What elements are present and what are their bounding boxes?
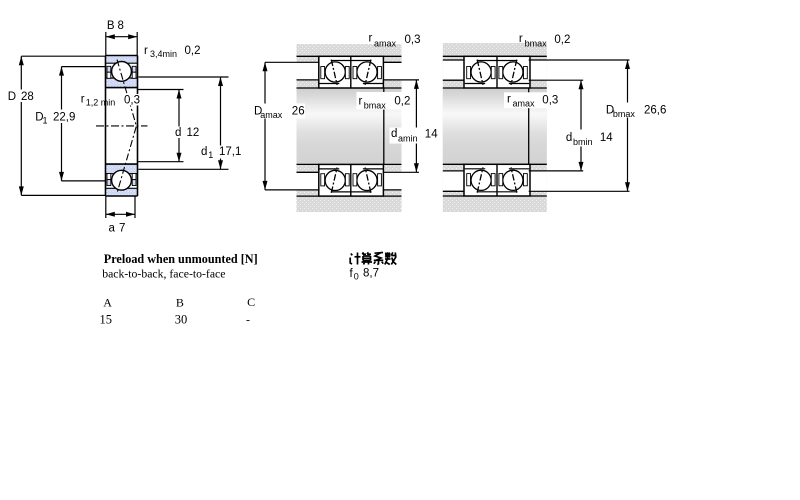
svg-text:bmin: bmin: [573, 137, 593, 147]
svg-text:r: r: [519, 33, 523, 45]
svg-text:a: a: [109, 222, 116, 234]
svg-text:back-to-back, face-to-face: back-to-back, face-to-face: [102, 267, 225, 280]
svg-text:26: 26: [292, 106, 305, 118]
svg-text:15: 15: [100, 313, 113, 327]
svg-text:amax: amax: [513, 99, 536, 109]
svg-text:d: d: [391, 128, 397, 140]
svg-text:r: r: [359, 96, 363, 108]
svg-text:amax: amax: [374, 38, 397, 48]
svg-text:0,2: 0,2: [394, 95, 410, 107]
svg-text:d: d: [566, 132, 572, 144]
svg-text:A: A: [103, 296, 112, 310]
svg-text:0,3: 0,3: [124, 95, 140, 107]
svg-text:d: d: [201, 146, 207, 158]
svg-text:0,3: 0,3: [405, 34, 421, 46]
svg-text:amax: amax: [260, 110, 283, 120]
svg-text:B: B: [107, 20, 115, 32]
svg-text:d: d: [175, 127, 181, 139]
svg-text:0,2: 0,2: [554, 34, 570, 46]
svg-text:C: C: [247, 295, 255, 309]
svg-text:0,3: 0,3: [542, 95, 558, 107]
svg-text:1,2 min: 1,2 min: [86, 98, 116, 108]
svg-text:3,4min: 3,4min: [150, 49, 177, 59]
svg-text:r: r: [369, 33, 373, 45]
svg-text:Preload when unmounted [N]: Preload when unmounted [N]: [104, 252, 258, 266]
svg-text:0,2: 0,2: [185, 45, 201, 57]
svg-text:bmax: bmax: [613, 109, 636, 119]
svg-text:8,7: 8,7: [363, 268, 379, 280]
svg-text:0: 0: [354, 272, 359, 282]
svg-text:14: 14: [600, 132, 613, 144]
svg-text:1: 1: [208, 150, 213, 160]
svg-text:r: r: [81, 94, 85, 106]
svg-text:B: B: [176, 296, 184, 310]
svg-text:amin: amin: [398, 133, 418, 143]
svg-text:D: D: [8, 91, 16, 103]
svg-text:r: r: [144, 45, 148, 57]
svg-text:bmax: bmax: [525, 39, 548, 49]
svg-text:28: 28: [21, 91, 34, 103]
svg-text:30: 30: [175, 313, 188, 327]
svg-text:14: 14: [425, 128, 438, 140]
svg-text:17,1: 17,1: [219, 146, 241, 158]
svg-text:22,9: 22,9: [53, 112, 75, 124]
svg-text:-: -: [246, 313, 250, 327]
svg-text:bmax: bmax: [364, 101, 387, 111]
svg-text:r: r: [507, 93, 511, 105]
svg-text:1: 1: [43, 116, 48, 126]
svg-text:7: 7: [119, 222, 125, 234]
svg-text:8: 8: [118, 20, 124, 32]
svg-text:12: 12: [187, 127, 200, 139]
svg-text:26,6: 26,6: [644, 104, 666, 116]
